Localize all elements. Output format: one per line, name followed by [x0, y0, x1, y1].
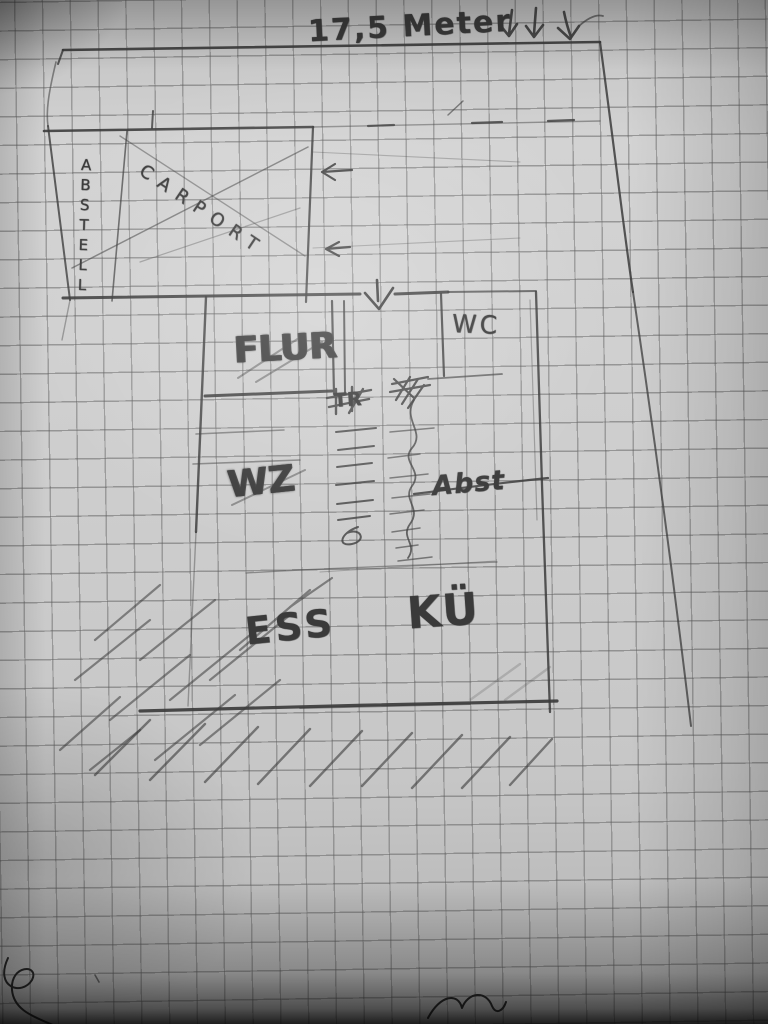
- double-left-arrows-icon: [322, 164, 352, 256]
- room-label-kitchen: KÜ: [406, 588, 482, 637]
- room-label-dining: ESS: [243, 603, 337, 650]
- room-label-hallway: FLUR: [233, 328, 338, 369]
- floorplan-sketch-photo: 17,5 Meter ABSTELL CARPORT FLUR WC TR WZ…: [0, 0, 768, 1024]
- scribble-column: [388, 377, 434, 561]
- carport-outline: [44, 101, 600, 302]
- triple-down-arrows-icon: [500, 8, 603, 39]
- entrance-down-arrow-icon: [365, 280, 393, 309]
- room-label-wc: WC: [452, 311, 501, 338]
- plot-boundary: [47, 42, 691, 726]
- room-label-storage: ABSTELL: [74, 156, 94, 296]
- room-label-stairs: TR: [333, 390, 362, 411]
- room-label-living-room: WZ: [225, 460, 296, 504]
- hatching-lower: [95, 664, 552, 788]
- pencil-linework: [0, 0, 768, 1024]
- pen-squiggles-icon: [4, 958, 506, 1024]
- room-label-crossed-out: Abst: [431, 467, 506, 500]
